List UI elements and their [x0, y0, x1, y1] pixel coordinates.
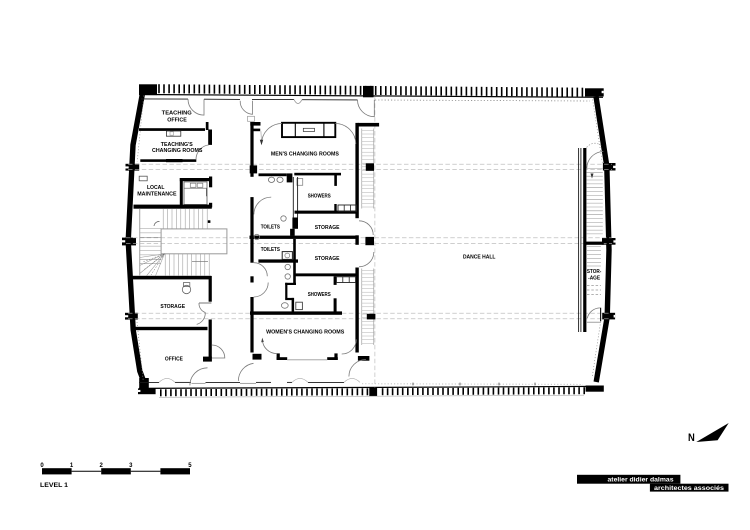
svg-text:STOR-: STOR-	[587, 269, 602, 275]
svg-text:DANCE HALL: DANCE HALL	[463, 254, 496, 260]
svg-text:LOCAL: LOCAL	[147, 185, 165, 191]
svg-text:MAINTENANCE: MAINTENANCE	[137, 191, 177, 197]
svg-text:-AGE: -AGE	[588, 276, 600, 282]
svg-text:TEACHING: TEACHING	[162, 111, 192, 117]
svg-text:TOILETS: TOILETS	[261, 247, 281, 253]
svg-text:TOILETS: TOILETS	[261, 225, 281, 231]
svg-text:STORAGE: STORAGE	[315, 225, 340, 231]
svg-text:STORAGE: STORAGE	[160, 304, 185, 310]
svg-text:LEVEL 1: LEVEL 1	[40, 482, 68, 489]
svg-text:MEN'S CHANGING ROOMS: MEN'S CHANGING ROOMS	[271, 151, 339, 157]
svg-text:atelier didier dalmas: atelier didier dalmas	[608, 477, 674, 484]
svg-text:OFFICE: OFFICE	[165, 357, 183, 363]
svg-text:WOMEN'S CHANGING ROOMS: WOMEN'S CHANGING ROOMS	[266, 330, 344, 336]
svg-text:architectes associés: architectes associés	[654, 485, 724, 492]
svg-text:STORAGE: STORAGE	[315, 256, 340, 262]
svg-text:SHOWERS: SHOWERS	[308, 292, 331, 298]
svg-text:CHANGING ROOMS: CHANGING ROOMS	[152, 148, 203, 154]
svg-text:N: N	[688, 432, 695, 444]
svg-text:SHOWERS: SHOWERS	[308, 193, 331, 199]
svg-text:OFFICE: OFFICE	[167, 117, 187, 123]
